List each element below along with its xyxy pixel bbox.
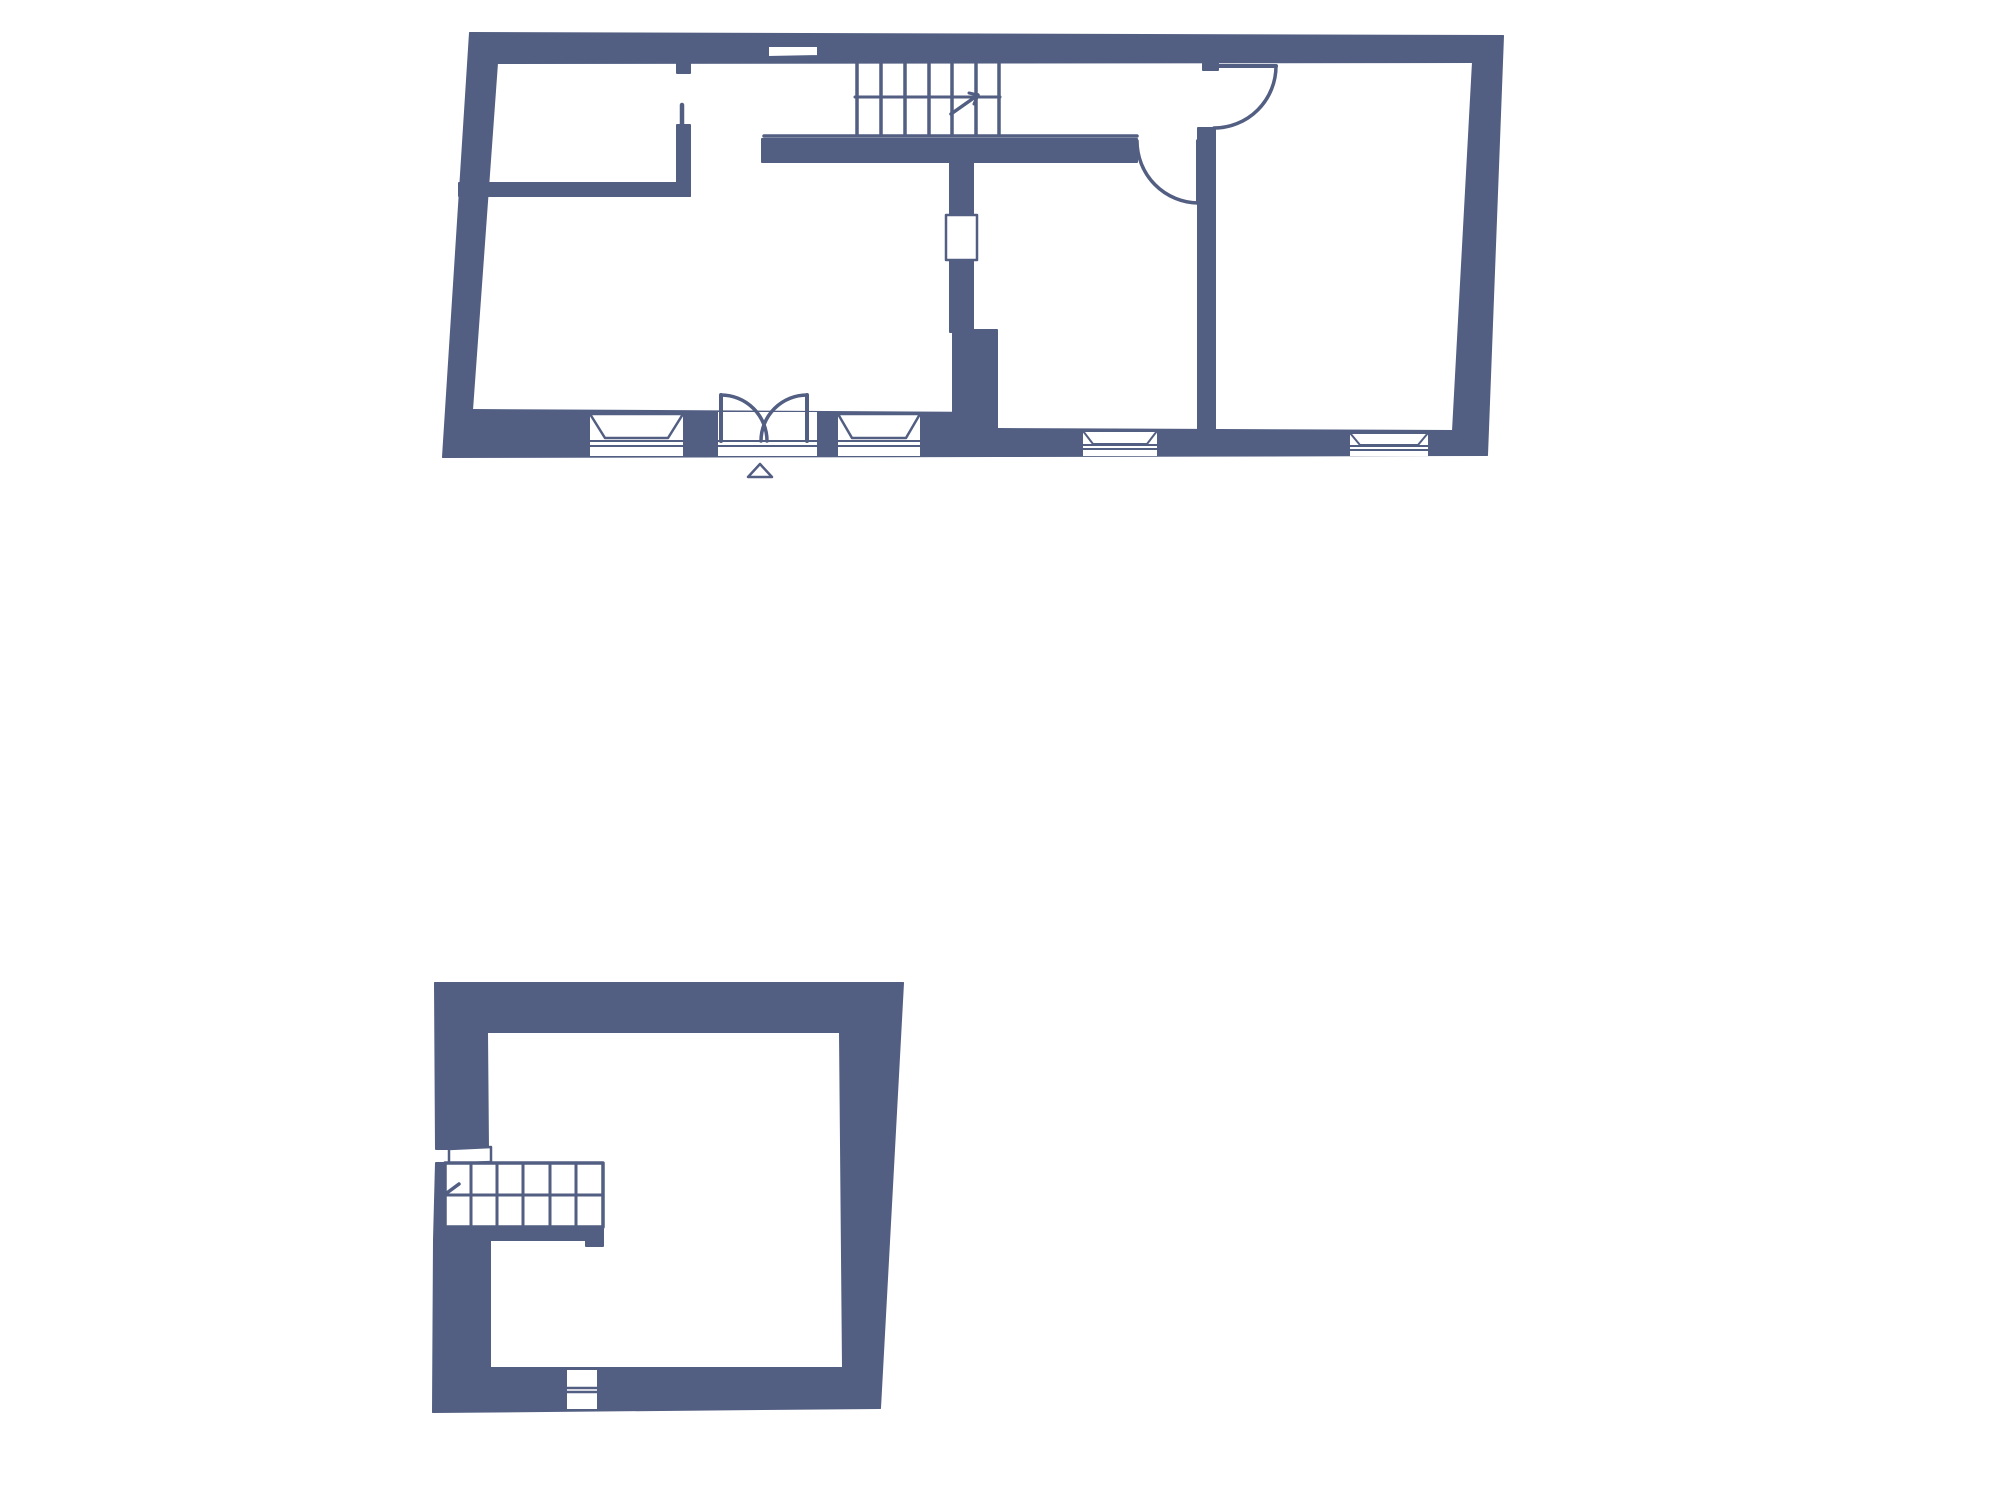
interior-wall-right-vertical <box>1198 128 1215 431</box>
window-top-wall <box>768 46 818 57</box>
interior-wall-pier <box>677 125 690 196</box>
outer-wall-right <box>840 983 903 1408</box>
window-bottom-wall <box>566 1369 598 1410</box>
outer-wall-left <box>443 33 497 457</box>
interior-wall-room-horizontal <box>459 183 690 196</box>
outer-wall-top <box>435 983 903 1032</box>
stair-base-step <box>586 1240 603 1246</box>
door-swing-arc <box>1214 66 1276 128</box>
entrance-marker-triangle <box>748 464 772 477</box>
outer-wall-top <box>470 33 1503 63</box>
ground-floor-plan <box>443 33 1503 477</box>
interior-wall-stub-top <box>677 58 690 73</box>
interior-wall-right-stub <box>1203 57 1218 70</box>
door-swing-arc <box>1137 141 1198 203</box>
stair-base-bar <box>445 1227 603 1240</box>
window-sill-3 <box>1083 431 1157 444</box>
interior-wall-middle-lower <box>953 330 997 414</box>
floor-plan-drawing <box>0 0 2000 1500</box>
floor-plan-canvas <box>0 0 2000 1500</box>
outer-wall-bottom <box>433 1368 880 1412</box>
window-sill-4 <box>1350 433 1428 445</box>
window-sill-2 <box>838 414 920 438</box>
window-middle-wall <box>946 215 977 260</box>
first-floor-plan <box>433 983 903 1412</box>
window-sill-1 <box>590 414 683 438</box>
outer-wall-right <box>1453 36 1503 455</box>
